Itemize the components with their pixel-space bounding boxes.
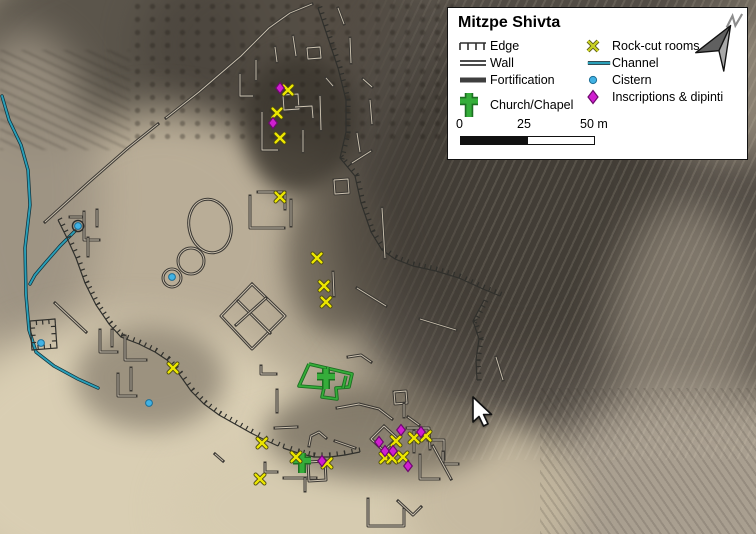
inscription-marker (404, 461, 413, 472)
legend-item-cistern: Cistern (586, 71, 746, 88)
rock-cut-room-marker (313, 254, 322, 263)
rock-cut-room-marker (284, 86, 293, 95)
legend-item-fortification: Fortification (458, 71, 586, 88)
wall-line (295, 106, 313, 118)
wall-line (261, 366, 276, 374)
legend-label: Fortification (490, 73, 555, 87)
rock-cut-room-marker (273, 109, 282, 118)
wall-line (420, 319, 456, 330)
edge-line (473, 300, 488, 380)
wall-line (215, 454, 223, 461)
wall-line (408, 417, 419, 425)
inscription-marker (397, 425, 406, 436)
legend-item-channel: Channel (586, 54, 746, 71)
inscription-marker (269, 118, 278, 129)
rock-cut-room-marker (276, 193, 285, 202)
wall-line (338, 8, 344, 24)
wall-line (166, 4, 312, 118)
wall-line-icon (458, 57, 488, 69)
scale-labels: 0 25 50 m (448, 117, 747, 131)
legend-label: Rock-cut rooms (612, 39, 700, 53)
wall-line (420, 455, 439, 479)
wall-line (100, 330, 117, 352)
legend-label: Wall (490, 56, 514, 70)
wall-line (496, 357, 503, 380)
edge-line-icon (458, 40, 488, 52)
wall-line (55, 303, 86, 332)
fortification-line-icon (458, 74, 488, 86)
wall-line (398, 501, 421, 515)
legend-label: Church/Chapel (490, 98, 573, 112)
wall-line (394, 391, 407, 404)
wall-line (309, 432, 326, 446)
legend-label: Cistern (612, 73, 652, 87)
legend-item-inscriptions: Inscriptions & dipinti (586, 88, 746, 105)
wall-line (45, 124, 158, 222)
legend-item-edge: Edge (458, 37, 586, 54)
church-cross-icon (458, 90, 480, 120)
wall-line (265, 463, 277, 472)
wall-line (307, 47, 321, 59)
rock-cut-room-marker (320, 282, 329, 291)
wall-line (240, 74, 253, 96)
rock-cut-room-marker (399, 453, 408, 462)
cistern-marker (146, 400, 153, 407)
wall-line (118, 374, 136, 396)
legend-panel: Mitzpe Shivta Edge Wall (447, 7, 748, 160)
wall-line (240, 74, 253, 96)
legend-item-rock-cut-rooms: Rock-cut rooms (586, 37, 746, 54)
wall-line (334, 179, 349, 194)
wall-line (335, 441, 355, 448)
rock-cut-room-marker (256, 475, 265, 484)
legend-title: Mitzpe Shivta (458, 14, 560, 32)
stone-circle (178, 248, 204, 274)
wall-line (118, 374, 136, 396)
rock-cut-x-icon (586, 39, 600, 53)
cistern-dot-icon (586, 73, 600, 87)
wall-line (100, 330, 117, 352)
mouse-cursor (471, 396, 497, 428)
cistern-marker (75, 223, 82, 230)
legend-label: Edge (490, 39, 519, 53)
rock-cut-room-marker (258, 439, 267, 448)
rock-cut-room-marker (322, 298, 331, 307)
scale-bar-fill (461, 137, 528, 144)
scale-tick: 0 (456, 117, 463, 131)
map-viewport[interactable]: Mitzpe Shivta Edge Wall (0, 0, 756, 534)
inscription-marker (375, 437, 384, 448)
cistern-marker (38, 340, 45, 347)
wall-line (326, 78, 333, 86)
wall-line (363, 79, 372, 87)
legend-item-wall: Wall (458, 54, 586, 71)
inscription-diamond-icon (586, 89, 600, 105)
channel-line-icon (586, 57, 612, 69)
legend-items: Edge Wall Fortification (458, 37, 746, 120)
rock-cut-room-marker (276, 134, 285, 143)
wall-line (420, 455, 439, 479)
legend-label: Inscriptions & dipinti (612, 90, 723, 104)
scale-bar (460, 136, 595, 145)
cistern-marker (169, 274, 176, 281)
legend-label: Channel (612, 56, 659, 70)
channel-line (30, 231, 75, 284)
legend-item-church: Church/Chapel (458, 90, 586, 120)
scale-tick: 50 m (580, 117, 608, 131)
wall-line (357, 288, 386, 306)
edge-line (58, 218, 280, 446)
scale-tick: 25 (517, 117, 531, 131)
